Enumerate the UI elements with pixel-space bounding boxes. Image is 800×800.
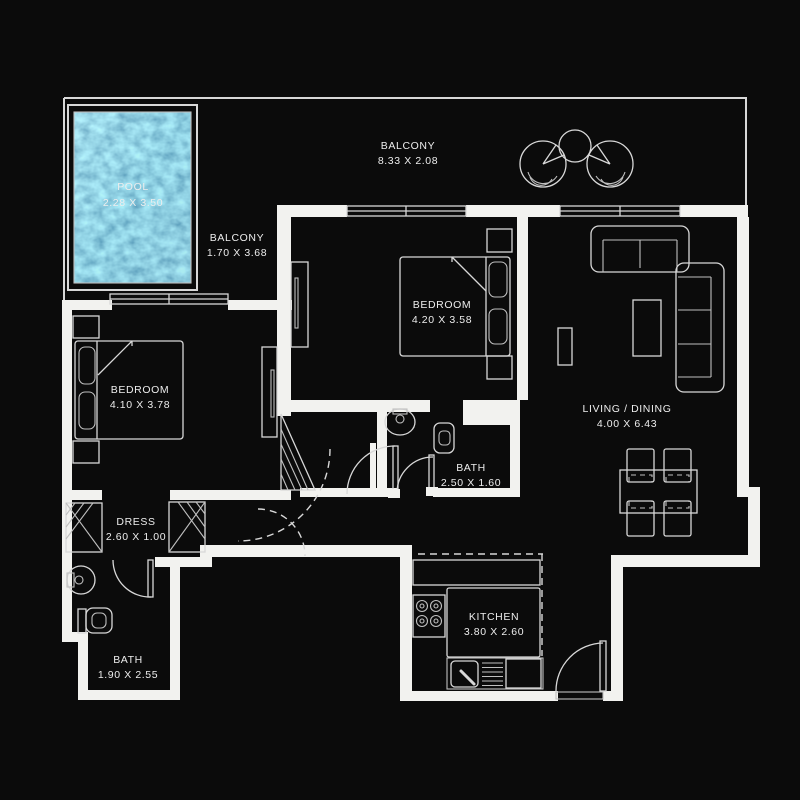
nightstand (73, 316, 99, 338)
dish-rack (482, 663, 503, 686)
dining-chair (627, 449, 654, 482)
room-dims-kitchen: 3.80 X 2.60 (464, 626, 524, 638)
room-label-living: LIVING / DINING (583, 403, 672, 415)
window-living (560, 206, 680, 216)
coffee-table (633, 300, 661, 356)
nightstand (487, 229, 512, 252)
blanket-fold (452, 257, 486, 291)
kitchen-sink (451, 661, 478, 687)
toilet (78, 608, 112, 633)
stove (413, 595, 445, 637)
blanket-fold (98, 341, 132, 375)
bedroom-center-furniture (291, 229, 512, 379)
wardrobe-hatch (169, 502, 205, 552)
room-label-bedroom-left: BEDROOM (111, 384, 169, 396)
bath-door (397, 455, 438, 496)
bath-left-fixtures (67, 566, 112, 633)
burner (417, 601, 428, 612)
room-dims-dress: 2.60 X 1.00 (106, 531, 166, 543)
room-dims-bath-center: 2.50 X 1.60 (441, 477, 501, 489)
egg-chair-left (520, 141, 566, 187)
entrance-door (556, 641, 606, 699)
burner (431, 601, 442, 612)
room-label-dress: DRESS (116, 516, 155, 528)
nightstand (487, 356, 512, 379)
room-dims-balcony-top: 8.33 X 2.08 (378, 155, 438, 167)
sofa-3seat (676, 263, 724, 392)
living-furniture (558, 226, 724, 536)
dining-chair (664, 501, 691, 536)
room-label-pool: POOL (117, 181, 149, 193)
sofa-2seat (591, 226, 689, 272)
wash-basin (385, 409, 415, 435)
burner (431, 616, 442, 627)
room-label-balcony-top: BALCONY (381, 140, 435, 152)
appliance (506, 659, 541, 688)
nightstand (73, 441, 99, 463)
pillow (79, 392, 95, 429)
room-dims-balcony-side: 1.70 X 3.68 (207, 247, 267, 259)
bottom-counter (447, 658, 543, 689)
wardrobe (291, 262, 308, 347)
window-bedroom-left (110, 294, 228, 304)
door-leaf (600, 641, 606, 691)
threshold (556, 692, 603, 699)
counter (413, 560, 540, 585)
dining-chair (627, 501, 654, 536)
room-label-bedroom-center: BEDROOM (413, 299, 471, 311)
floor-plan: POOL 2.28 X 3.50 BALCONY 8.33 X 2.08 BAL… (0, 0, 800, 800)
dining-table (620, 470, 697, 513)
burner (417, 616, 428, 627)
balcony-furniture (520, 130, 633, 187)
dining-chair (664, 449, 691, 482)
window-bedroom-center (347, 206, 466, 216)
room-label-balcony-side: BALCONY (210, 232, 264, 244)
floor-plan-canvas: POOL 2.28 X 3.50 BALCONY 8.33 X 2.08 BAL… (0, 0, 800, 800)
room-label-kitchen: KITCHEN (469, 611, 519, 623)
dress-door (113, 560, 153, 597)
pillow (79, 347, 95, 384)
egg-chair-right (587, 141, 633, 187)
room-dims-living: 4.00 X 6.43 (597, 418, 657, 430)
toilet (434, 423, 454, 453)
room-label-bath-left: BATH (113, 654, 143, 666)
room-label-bath-center: BATH (456, 462, 486, 474)
room-dims-bedroom-center: 4.20 X 3.58 (412, 314, 472, 326)
pillow (489, 309, 507, 344)
room-dims-pool: 2.28 X 3.50 (103, 197, 163, 209)
bedroom-left-furniture (73, 316, 277, 463)
hatched-shaft (281, 414, 315, 490)
side-table (558, 328, 572, 365)
dining-set (620, 449, 697, 536)
round-table (559, 130, 591, 162)
room-dims-bedroom-left: 4.10 X 3.78 (110, 399, 170, 411)
room-dims-bath-left: 1.90 X 2.55 (98, 669, 158, 681)
door-swing-arc (556, 643, 603, 691)
wardrobe (262, 347, 277, 437)
pillow (489, 262, 507, 297)
